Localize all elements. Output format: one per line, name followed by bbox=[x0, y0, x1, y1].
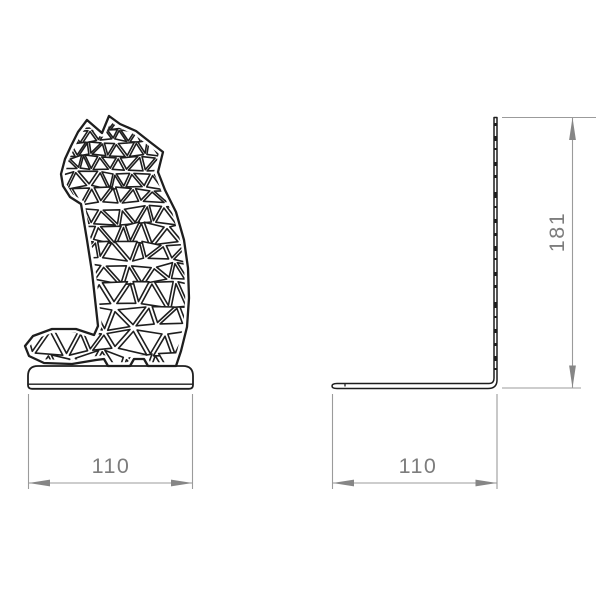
mesh-strut bbox=[21, 290, 35, 308]
mesh-strut bbox=[40, 289, 63, 308]
mesh-strut bbox=[176, 132, 187, 139]
mesh-strut bbox=[182, 173, 200, 184]
mesh-strut bbox=[164, 117, 173, 129]
mesh-strut bbox=[43, 173, 60, 186]
arrowhead-left-icon bbox=[29, 480, 51, 487]
mesh-strut bbox=[216, 190, 229, 203]
mesh-strut bbox=[43, 307, 68, 326]
mesh-strut bbox=[39, 144, 52, 157]
mesh-strut bbox=[69, 120, 80, 129]
side-height-label: 181 bbox=[545, 212, 569, 252]
mesh-strut bbox=[210, 171, 225, 188]
mesh-strut bbox=[58, 313, 79, 328]
mesh-strut bbox=[24, 156, 38, 170]
mesh-strut bbox=[56, 242, 76, 258]
mesh-strut bbox=[49, 265, 71, 282]
mesh-strut bbox=[173, 173, 192, 184]
mesh-strut bbox=[181, 131, 194, 138]
mesh-strut bbox=[24, 170, 38, 183]
sheet-profile bbox=[332, 118, 497, 389]
mesh-strut bbox=[193, 207, 209, 220]
mesh-strut bbox=[196, 187, 212, 203]
mesh-strut bbox=[13, 249, 35, 262]
arrowhead-down-icon bbox=[569, 366, 576, 389]
mesh-strut bbox=[26, 204, 41, 221]
mesh-strut bbox=[192, 222, 212, 237]
mesh-strut bbox=[194, 115, 205, 125]
mesh-strut bbox=[50, 189, 62, 205]
mesh-strut bbox=[74, 306, 88, 324]
mesh-strut bbox=[204, 172, 216, 189]
mesh-strut bbox=[216, 326, 238, 348]
mesh-strut bbox=[153, 130, 164, 140]
mesh-strut bbox=[198, 209, 214, 224]
mesh-strut bbox=[191, 132, 203, 141]
mesh-strut bbox=[28, 229, 42, 243]
mesh-strut bbox=[129, 118, 141, 128]
mesh-strut bbox=[47, 230, 65, 244]
mesh-strut bbox=[35, 228, 51, 242]
mesh-strut bbox=[40, 247, 51, 259]
mesh-strut bbox=[190, 242, 208, 262]
mesh-strut bbox=[195, 352, 216, 372]
mesh-strut bbox=[158, 131, 173, 141]
mesh-strut bbox=[168, 130, 178, 138]
mesh-strut bbox=[177, 115, 191, 125]
mesh-strut bbox=[26, 246, 43, 258]
arrowhead-right-icon bbox=[171, 480, 193, 487]
mesh-strut bbox=[149, 116, 161, 125]
side-width-label: 110 bbox=[399, 454, 438, 478]
mesh-strut bbox=[188, 188, 204, 207]
mesh-strut bbox=[42, 120, 53, 130]
mesh-strut bbox=[212, 130, 226, 141]
mesh-strut bbox=[209, 155, 221, 168]
mesh-strut bbox=[27, 288, 48, 307]
mesh-strut bbox=[40, 262, 52, 281]
mesh-strut bbox=[53, 208, 70, 220]
mesh-strut bbox=[190, 269, 213, 285]
mesh-strut bbox=[206, 133, 219, 143]
arrowhead-right-icon bbox=[476, 480, 498, 487]
mesh-strut bbox=[60, 131, 69, 140]
mesh-strut bbox=[189, 310, 214, 329]
mesh-strut bbox=[217, 222, 235, 238]
mesh-strut bbox=[11, 145, 24, 157]
mesh-strut bbox=[167, 176, 178, 189]
mesh-strut bbox=[163, 146, 175, 156]
mesh-strut bbox=[22, 115, 34, 125]
mesh-strut bbox=[65, 208, 81, 220]
mesh-strut bbox=[42, 158, 58, 171]
mesh-strut bbox=[37, 155, 49, 169]
mesh-strut bbox=[30, 209, 48, 223]
mesh-strut bbox=[191, 288, 215, 307]
technical-drawing-canvas: 110 181 110 bbox=[0, 0, 600, 600]
mesh-strut bbox=[209, 329, 226, 350]
mesh-strut bbox=[186, 161, 196, 172]
mesh-strut bbox=[203, 282, 226, 305]
mesh-strut bbox=[193, 159, 206, 172]
mesh-strut bbox=[28, 147, 39, 158]
mesh-strut bbox=[24, 263, 44, 282]
mesh-strut bbox=[35, 188, 55, 204]
side-height-dimension: 181 bbox=[502, 118, 596, 389]
mesh-strut bbox=[214, 208, 231, 223]
mesh-strut bbox=[185, 143, 199, 156]
mesh-strut bbox=[206, 268, 223, 284]
mesh-strut bbox=[192, 144, 206, 158]
mesh-strut bbox=[168, 118, 182, 130]
mesh-strut bbox=[35, 130, 49, 143]
mesh-strut bbox=[28, 120, 39, 129]
mesh-strut bbox=[202, 355, 223, 374]
mesh-strut bbox=[46, 129, 57, 142]
mesh-strut bbox=[12, 116, 25, 128]
mesh-strut bbox=[212, 242, 226, 260]
mesh-strut bbox=[17, 171, 27, 187]
mesh-strut bbox=[208, 116, 219, 128]
mesh-strut bbox=[46, 207, 61, 217]
mesh-strut bbox=[208, 191, 220, 205]
cat-figure bbox=[10, 110, 245, 380]
mesh-strut bbox=[12, 206, 26, 225]
mesh-strut bbox=[21, 130, 32, 142]
mesh-strut bbox=[201, 224, 223, 240]
mesh-strut bbox=[192, 327, 210, 346]
mesh-strut bbox=[182, 208, 194, 224]
mesh-strut bbox=[56, 227, 73, 241]
technical-drawing-page: 110 181 110 bbox=[0, 0, 600, 600]
mesh-strut bbox=[199, 159, 212, 172]
mesh-strut bbox=[196, 171, 207, 184]
mesh-strut bbox=[167, 160, 182, 170]
mesh-strut bbox=[29, 128, 43, 139]
front-view: 110 bbox=[10, 110, 245, 489]
cat-mesh bbox=[10, 115, 245, 380]
side-width-dimension: 110 bbox=[333, 394, 498, 489]
mesh-strut bbox=[49, 119, 60, 129]
mesh-strut bbox=[27, 189, 45, 205]
arrowhead-up-icon bbox=[569, 118, 576, 141]
mesh-strut bbox=[62, 119, 73, 127]
mesh-strut bbox=[68, 285, 84, 304]
mesh-strut bbox=[22, 144, 36, 156]
front-width-label: 110 bbox=[92, 454, 131, 478]
mesh-strut bbox=[171, 145, 182, 154]
mesh-strut bbox=[222, 350, 245, 370]
mesh-strut bbox=[54, 284, 71, 299]
mesh-strut bbox=[55, 120, 65, 130]
mesh-strut bbox=[31, 174, 49, 187]
mesh-strut bbox=[58, 263, 82, 277]
mesh-strut bbox=[144, 116, 154, 126]
mesh-strut bbox=[178, 146, 189, 156]
mesh-strut bbox=[43, 145, 57, 158]
mesh-strut bbox=[198, 132, 209, 141]
mesh-strut bbox=[47, 241, 67, 256]
mesh-strut bbox=[135, 116, 146, 126]
front-width-dimension: 110 bbox=[29, 394, 193, 489]
mesh-strut bbox=[186, 116, 197, 126]
mesh-strut bbox=[77, 265, 91, 279]
mesh-strut bbox=[202, 143, 212, 157]
mesh-strut bbox=[196, 243, 212, 263]
side-view: 181 110 bbox=[332, 118, 596, 490]
mesh-strut bbox=[53, 132, 65, 143]
mesh-strut bbox=[172, 187, 191, 206]
mesh-strut bbox=[202, 304, 223, 328]
mesh-strut bbox=[173, 159, 189, 168]
mesh-strut bbox=[56, 144, 67, 156]
base-plate bbox=[28, 366, 193, 389]
arrowhead-left-icon bbox=[333, 480, 355, 487]
mesh-strut bbox=[183, 224, 196, 241]
mesh-strut bbox=[157, 120, 165, 130]
mesh-strut bbox=[32, 309, 52, 328]
mesh-strut bbox=[200, 120, 213, 129]
mesh-strut bbox=[36, 119, 46, 128]
